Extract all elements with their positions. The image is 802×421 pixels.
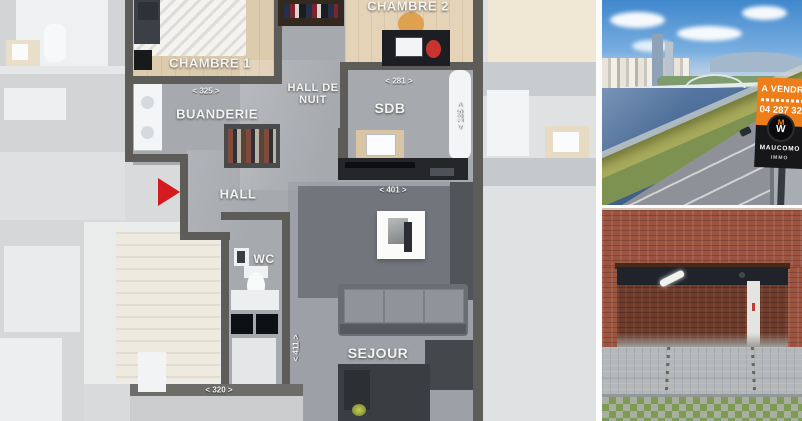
grass-pavers (602, 397, 802, 421)
brick-pillar (602, 267, 617, 347)
wall-segment (180, 154, 188, 240)
wall-segment (473, 0, 483, 421)
cloud (610, 12, 665, 28)
sofa-cushion (344, 289, 384, 323)
wc-mat (256, 314, 278, 334)
dimension-label: < 401 > (379, 186, 406, 195)
room-label-buanderie: BUANDERIE (176, 107, 258, 122)
room-label-chambre2: CHAMBRE 2 (367, 0, 449, 14)
building-corner (770, 166, 802, 205)
cloud (742, 6, 787, 20)
washer-door (141, 96, 154, 109)
faded-toilet (44, 24, 66, 62)
paver-drain-line (751, 347, 756, 394)
agency-logo-letter: W (769, 124, 793, 135)
room-label-hall-de-nuit: HALL DE NUIT (281, 82, 345, 106)
dimension-label: < 281 > (385, 77, 412, 86)
faded-wood-floor (488, 0, 596, 62)
spot-light (739, 272, 745, 278)
carport-interior (617, 267, 788, 347)
faded-room-shape (483, 158, 596, 186)
shoe-rows (228, 129, 276, 163)
art-stripe (404, 222, 412, 252)
wall-segment (338, 128, 346, 162)
dimension-label: < 185 > (456, 102, 465, 129)
washing-machines (134, 84, 162, 151)
wall-segment (125, 0, 133, 162)
faded-sink (12, 44, 28, 60)
wc-counter (231, 290, 279, 310)
room-label-hall: HALL (220, 187, 257, 202)
dimension-label: < 320 > (205, 386, 232, 395)
faded-sink (553, 132, 579, 152)
faded-room-shape (4, 88, 66, 120)
sejour-cabinet (425, 340, 473, 390)
wardrobe-clothes (284, 4, 338, 18)
room-label-wc: WC (254, 252, 275, 266)
entrance-arrow-icon (158, 178, 180, 206)
for-sale-sign: A VENDRE 04 287 32 M W MAUCOMO IMMO (754, 77, 802, 171)
carport-ceiling (617, 267, 788, 285)
nightstand (134, 50, 152, 70)
brick-pillar (788, 267, 802, 347)
wc-mat (231, 314, 253, 334)
column-marks (752, 303, 755, 311)
wall-segment (221, 232, 229, 394)
dimension-label: < 325 > (192, 87, 219, 96)
desk-screen (395, 37, 423, 57)
wc-door-glyph (237, 251, 245, 263)
room-label-chambre1: CHAMBRE 1 (169, 56, 251, 71)
paver-drain-line (665, 347, 670, 394)
sejour-side-unit (450, 182, 473, 300)
photo-river-view: A VENDRE 04 287 32 M W MAUCOMO IMMO (602, 0, 802, 205)
faded-room-shape (4, 246, 80, 332)
brick-wall (602, 210, 802, 267)
plant (352, 404, 366, 416)
cloud (677, 26, 742, 41)
sdb-sink (366, 134, 396, 156)
driveway (602, 347, 802, 394)
room-label-sejour: SEJOUR (348, 345, 409, 361)
listing-media-collage: CHAMBRE 1 CHAMBRE 2 BUANDERIE HALL DE NU… (0, 0, 802, 421)
photo-garage (602, 208, 802, 421)
sofa-cushion (384, 289, 424, 323)
shower (232, 338, 276, 384)
bed-pillow (138, 2, 158, 20)
faded-room-shape (130, 396, 303, 421)
wall-segment (221, 212, 290, 220)
sign-status-label: A VENDRE (761, 83, 802, 95)
room-label-sdb: SDB (374, 100, 405, 116)
wall-segment (282, 212, 290, 396)
media-shelf (430, 168, 454, 176)
appliance-box (138, 352, 166, 392)
faded-stairs (116, 232, 220, 382)
wall-segment (133, 76, 280, 84)
desk-red-item (426, 40, 441, 58)
floor-plan: CHAMBRE 1 CHAMBRE 2 BUANDERIE HALL DE NU… (0, 0, 596, 421)
interior-floor-fade (617, 333, 788, 347)
sofa-cushion (424, 289, 464, 323)
faded-room-shape (0, 338, 62, 421)
faded-room-shape (0, 66, 125, 74)
sofa-seat-shadow (340, 324, 466, 334)
faded-door (487, 90, 529, 156)
tv (345, 162, 415, 168)
wall-segment (125, 154, 187, 162)
paver-joint (602, 377, 802, 379)
washer-door (141, 126, 154, 139)
hills (710, 52, 802, 72)
dimension-label: < 411 > (292, 335, 301, 362)
faded-room-shape (0, 152, 125, 220)
